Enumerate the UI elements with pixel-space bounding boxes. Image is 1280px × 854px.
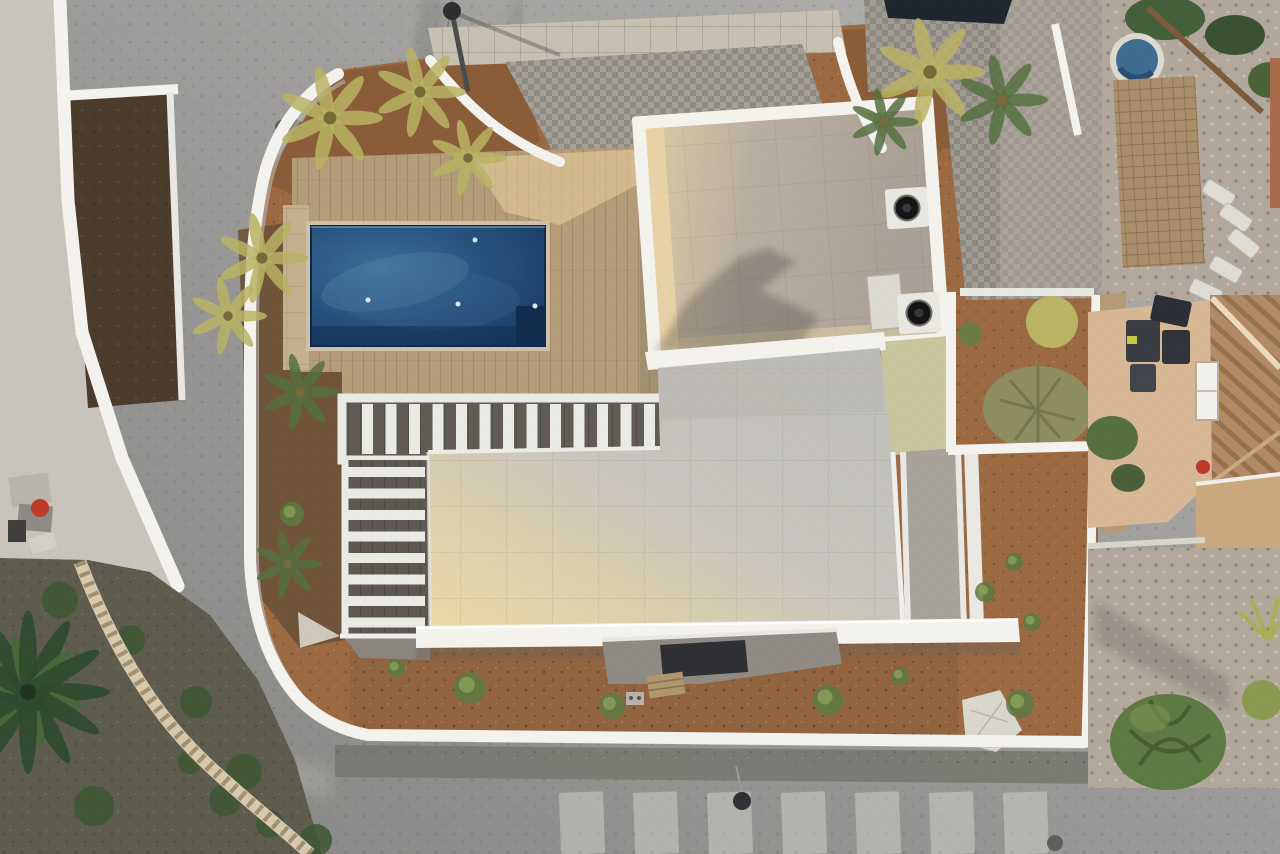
scene-svg bbox=[0, 0, 1280, 854]
aerial-photo-scene bbox=[0, 0, 1280, 854]
photo-grain bbox=[0, 0, 1280, 854]
